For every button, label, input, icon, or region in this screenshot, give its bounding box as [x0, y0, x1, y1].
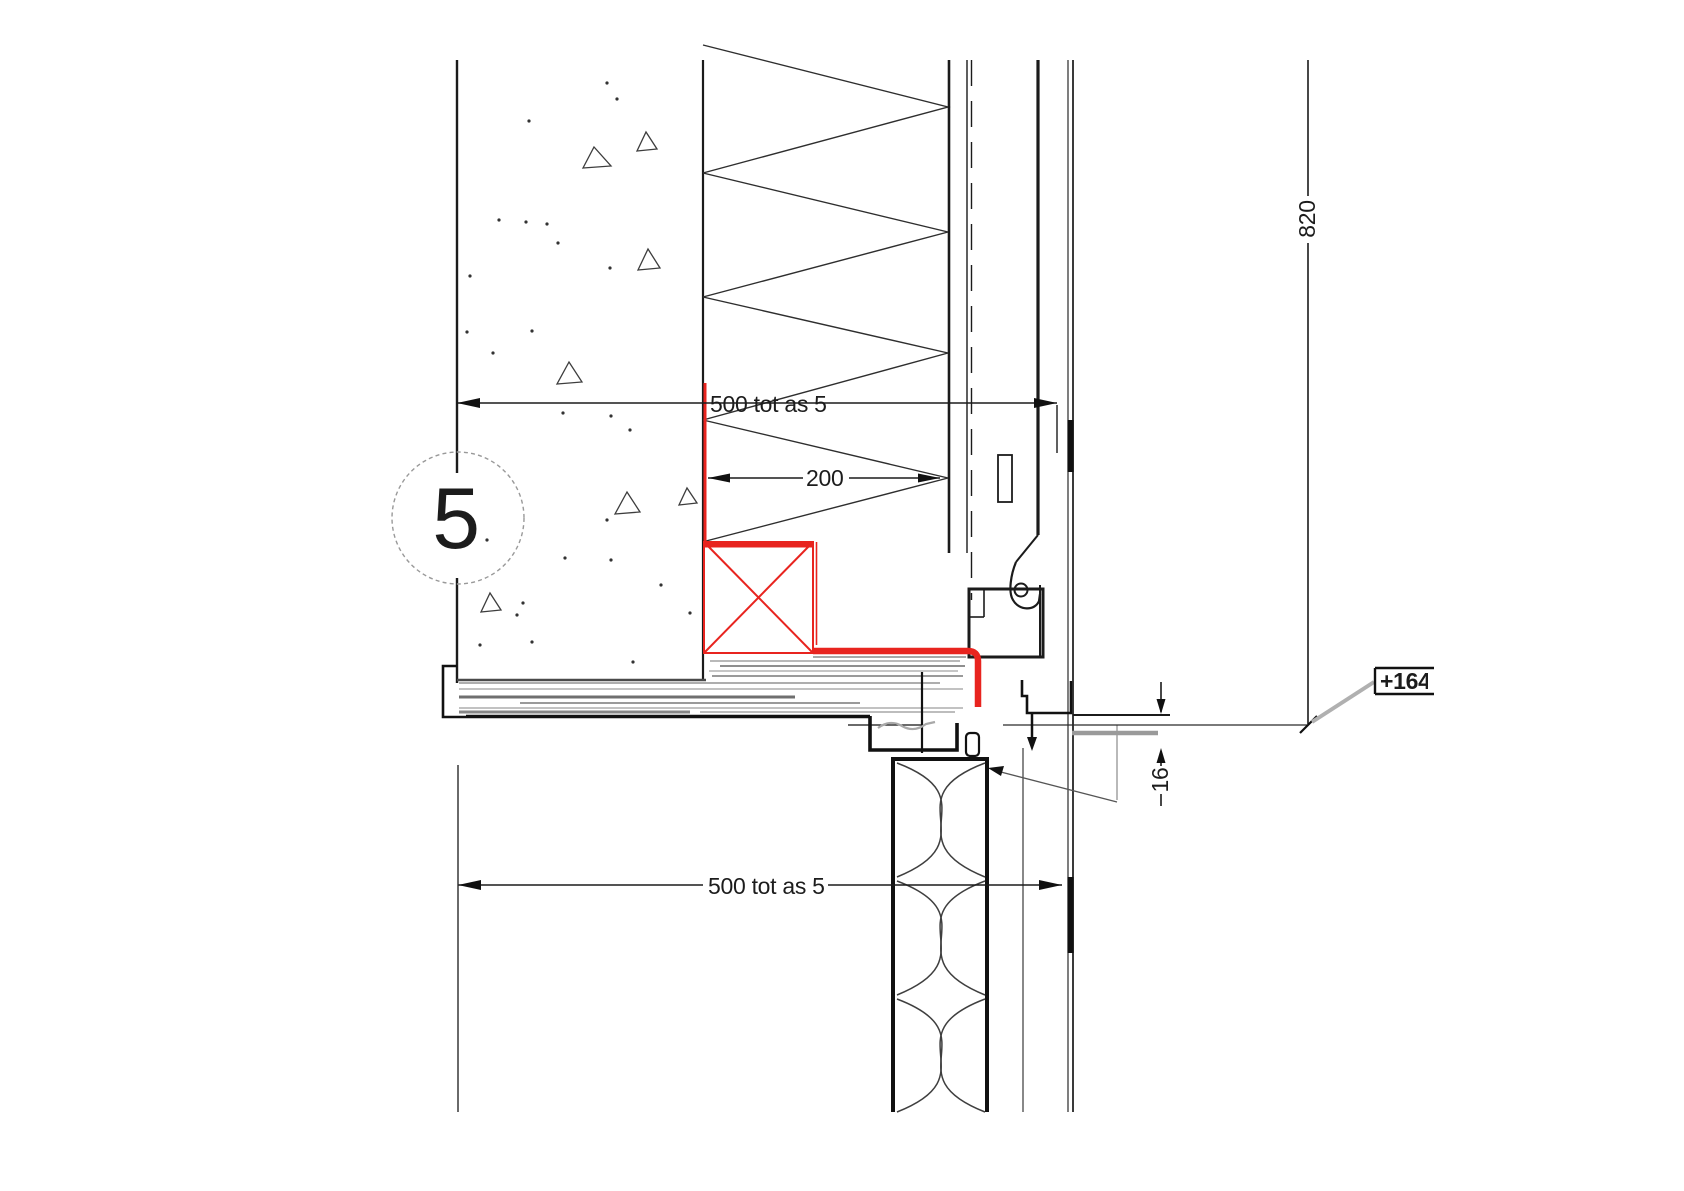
level-lines	[1003, 715, 1307, 733]
dimension-200: 200	[708, 465, 940, 491]
sill-red-highlight	[704, 383, 978, 707]
dim-arrow-down	[1157, 699, 1166, 714]
dim-arrow-left	[457, 398, 480, 408]
leader-arrow	[988, 766, 1117, 802]
dim-arrow-left	[458, 880, 481, 890]
batt-insulation	[893, 759, 987, 1112]
frame-bottom-section	[969, 589, 1043, 657]
sill-board-layers	[459, 657, 966, 712]
step-profile	[1022, 680, 1071, 713]
detail-bubble: 5	[392, 452, 524, 584]
dim-label-200: 200	[806, 465, 843, 491]
window-frame	[967, 60, 1043, 657]
detail-number: 5	[432, 471, 480, 567]
screw-channel	[998, 455, 1012, 502]
pointer-arrow-down	[1027, 713, 1037, 751]
membrane-band	[813, 651, 978, 707]
sill-end-dam	[443, 666, 466, 717]
concrete-wall	[457, 60, 706, 683]
dimension-500-bottom: 500 tot as 5	[458, 765, 1062, 1112]
dim-arrow-right	[1034, 398, 1057, 408]
dimension-16: 16	[1147, 682, 1173, 806]
dim-label-820: 820	[1294, 200, 1320, 237]
level-marker: +1648	[1312, 668, 1444, 722]
drawing-canvas: 500 tot as 5 200 820 16 500 tot as 5 5	[0, 0, 1684, 1191]
level-label: +1648	[1380, 668, 1444, 694]
dim-label-500-top: 500 tot as 5	[710, 391, 827, 417]
leader-line	[1312, 682, 1374, 722]
dim-arrow-right	[1039, 880, 1062, 890]
dim-label-500-bottom: 500 tot as 5	[708, 873, 825, 899]
mineral-wool-hatch	[897, 763, 985, 1112]
drip-tray	[870, 716, 957, 750]
dim-label-16: 16	[1147, 768, 1173, 793]
concrete-aggregate-dots	[465, 81, 691, 663]
dim-arrow-up	[1157, 748, 1166, 763]
concrete-aggregate-triangles	[481, 132, 697, 612]
construction-detail-drawing: 500 tot as 5 200 820 16 500 tot as 5 5	[0, 0, 1684, 1191]
dimension-820: 820	[1294, 60, 1320, 733]
fixing-clip	[966, 733, 979, 756]
dim-arrow-left	[708, 474, 730, 483]
